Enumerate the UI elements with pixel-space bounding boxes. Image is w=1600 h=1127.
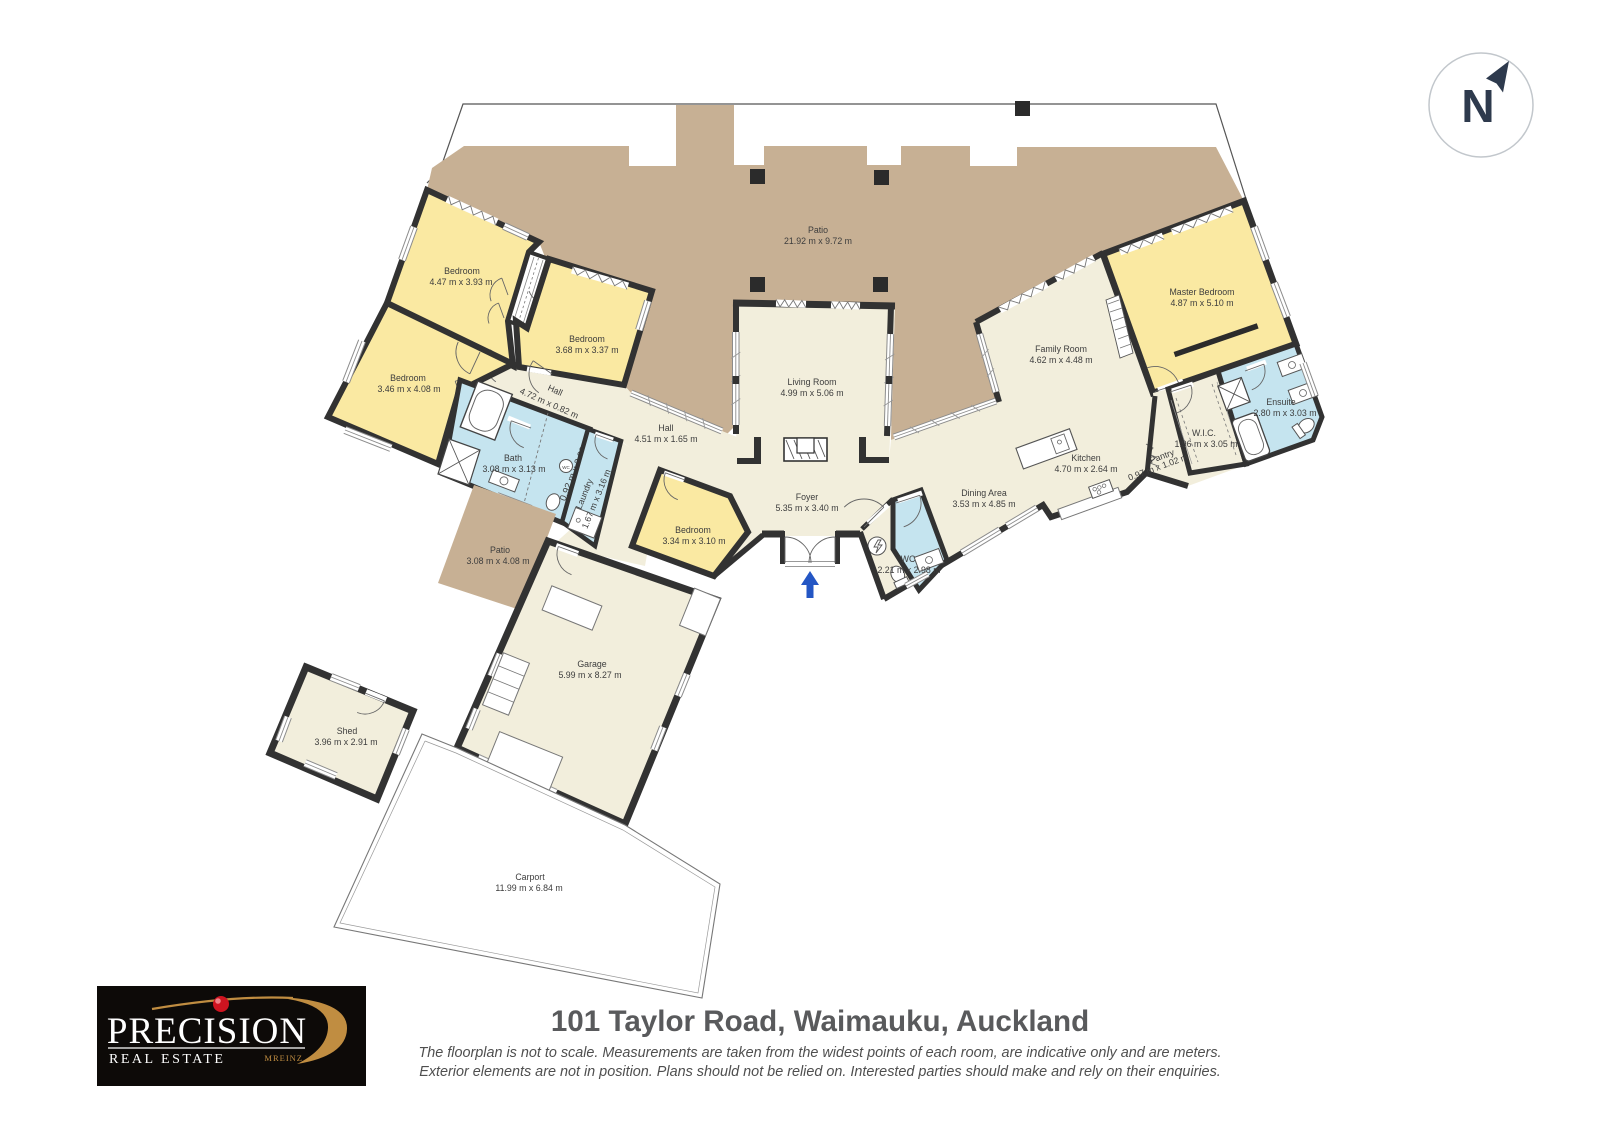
svg-text:MREINZ: MREINZ: [264, 1053, 303, 1063]
svg-text:2.80 m x 3.03 m: 2.80 m x 3.03 m: [1253, 408, 1316, 418]
svg-text:3.08 m x 3.13 m: 3.08 m x 3.13 m: [482, 464, 545, 474]
svg-text:4.99 m x 5.06 m: 4.99 m x 5.06 m: [780, 388, 843, 398]
svg-text:3.34 m x 3.10 m: 3.34 m x 3.10 m: [662, 536, 725, 546]
svg-text:5.35 m x 3.40 m: 5.35 m x 3.40 m: [775, 503, 838, 513]
svg-text:PRECISION: PRECISION: [107, 1011, 307, 1052]
svg-text:2.21 m x 2.98 m: 2.21 m x 2.98 m: [877, 565, 940, 575]
svg-text:4.47 m x 3.93 m: 4.47 m x 3.93 m: [429, 277, 492, 287]
svg-text:Dining Area: Dining Area: [961, 488, 1007, 498]
svg-text:WC: WC: [901, 554, 916, 564]
svg-text:3.08 m x 4.08 m: 3.08 m x 4.08 m: [466, 556, 529, 566]
svg-text:Shed: Shed: [337, 726, 358, 736]
svg-text:Foyer: Foyer: [796, 492, 819, 502]
svg-text:4.51 m x 1.65 m: 4.51 m x 1.65 m: [634, 434, 697, 444]
svg-text:W.I.C.: W.I.C.: [1192, 428, 1216, 438]
svg-text:REAL ESTATE: REAL ESTATE: [109, 1052, 225, 1067]
svg-text:21.92 m x 9.72 m: 21.92 m x 9.72 m: [784, 236, 852, 246]
svg-text:The floorplan is not to scale.: The floorplan is not to scale. Measureme…: [418, 1045, 1221, 1061]
svg-text:3.46 m x 4.08 m: 3.46 m x 4.08 m: [377, 384, 440, 394]
svg-text:3.53 m x 4.85 m: 3.53 m x 4.85 m: [952, 499, 1015, 509]
svg-text:11.99 m x 6.84 m: 11.99 m x 6.84 m: [495, 883, 562, 893]
svg-text:3.96 m x 2.91 m: 3.96 m x 2.91 m: [314, 737, 377, 747]
svg-text:Family Room: Family Room: [1035, 344, 1087, 354]
svg-text:Living Room: Living Room: [788, 377, 837, 387]
svg-text:101 Taylor Road, Waimauku, Auc: 101 Taylor Road, Waimauku, Auckland: [551, 1005, 1089, 1038]
svg-text:Patio: Patio: [808, 225, 828, 235]
svg-text:N: N: [1461, 80, 1494, 132]
svg-text:Ensuite: Ensuite: [1266, 397, 1295, 407]
svg-text:Hall: Hall: [658, 423, 673, 433]
svg-text:5.99 m x 8.27 m: 5.99 m x 8.27 m: [558, 670, 621, 680]
svg-text:Master Bedroom: Master Bedroom: [1169, 287, 1234, 297]
svg-text:1.96 m x 3.05 m: 1.96 m x 3.05 m: [1174, 439, 1237, 449]
svg-text:4.62 m x 4.48 m: 4.62 m x 4.48 m: [1029, 355, 1092, 365]
svg-text:Bedroom: Bedroom: [390, 373, 426, 383]
svg-text:Patio: Patio: [490, 545, 510, 555]
svg-text:Kitchen: Kitchen: [1071, 453, 1100, 463]
svg-text:Garage: Garage: [577, 659, 606, 669]
svg-text:Bedroom: Bedroom: [569, 334, 605, 344]
svg-text:3.68 m x 3.37 m: 3.68 m x 3.37 m: [555, 345, 618, 355]
svg-text:Bedroom: Bedroom: [444, 266, 480, 276]
svg-text:4.87 m x 5.10 m: 4.87 m x 5.10 m: [1170, 298, 1233, 308]
svg-text:Bedroom: Bedroom: [675, 525, 711, 535]
svg-text:Bath: Bath: [504, 453, 522, 463]
svg-text:Carport: Carport: [515, 872, 545, 882]
svg-text:4.70 m x 2.64 m: 4.70 m x 2.64 m: [1054, 464, 1117, 474]
svg-text:Exterior elements are not in p: Exterior elements are not in position. P…: [419, 1064, 1221, 1080]
